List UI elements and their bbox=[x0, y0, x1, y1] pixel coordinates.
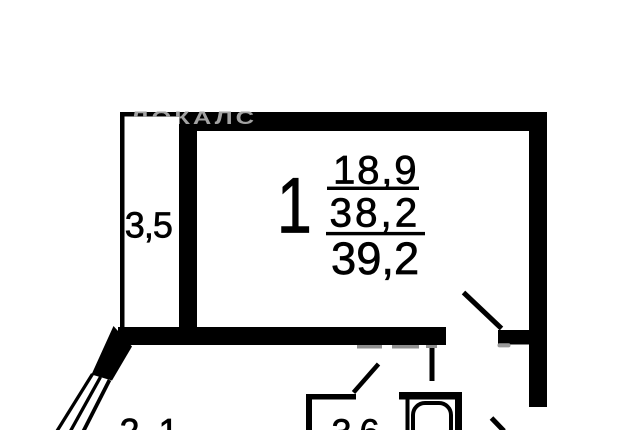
svg-text:2,1: 2,1 bbox=[120, 411, 184, 430]
svg-text:38,2: 38,2 bbox=[330, 189, 421, 235]
svg-text:3,5: 3,5 bbox=[125, 205, 172, 246]
svg-text:18,9: 18,9 bbox=[333, 148, 418, 193]
svg-text:3,6: 3,6 bbox=[332, 412, 379, 431]
svg-text:1: 1 bbox=[277, 162, 312, 250]
svg-text:39,2: 39,2 bbox=[331, 233, 419, 284]
